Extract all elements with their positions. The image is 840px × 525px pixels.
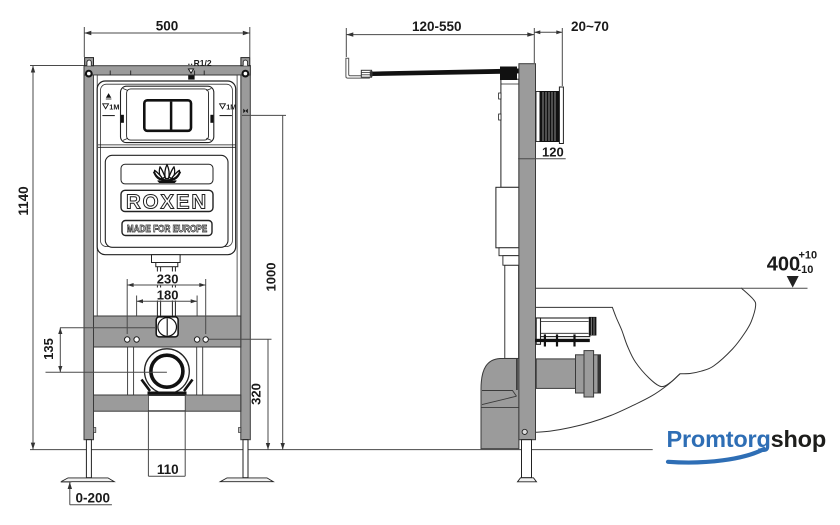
svg-text:120: 120 [542, 145, 564, 160]
svg-text:1M: 1M [109, 102, 119, 111]
svg-text:ROXEN: ROXEN [126, 190, 208, 213]
svg-text:R1/2: R1/2 [194, 58, 212, 68]
svg-text:500: 500 [156, 19, 179, 34]
svg-text:400: 400 [767, 254, 800, 276]
svg-text:+10: +10 [799, 250, 818, 262]
svg-text:230: 230 [157, 272, 179, 287]
svg-text:20~70: 20~70 [571, 19, 609, 34]
svg-text:180: 180 [157, 287, 179, 302]
svg-text:1140: 1140 [16, 186, 31, 215]
svg-text:0-200: 0-200 [76, 491, 111, 506]
svg-text:1M: 1M [226, 102, 236, 111]
svg-text:1000: 1000 [264, 263, 279, 292]
svg-text:110: 110 [157, 462, 179, 477]
svg-text:Promtorgshop: Promtorgshop [667, 426, 827, 452]
svg-text:135: 135 [41, 338, 56, 360]
svg-text:120-550: 120-550 [412, 19, 462, 34]
svg-text:320: 320 [248, 383, 263, 405]
svg-text:MADE FOR EUROPE: MADE FOR EUROPE [127, 223, 207, 234]
svg-text:-10: -10 [798, 264, 814, 276]
